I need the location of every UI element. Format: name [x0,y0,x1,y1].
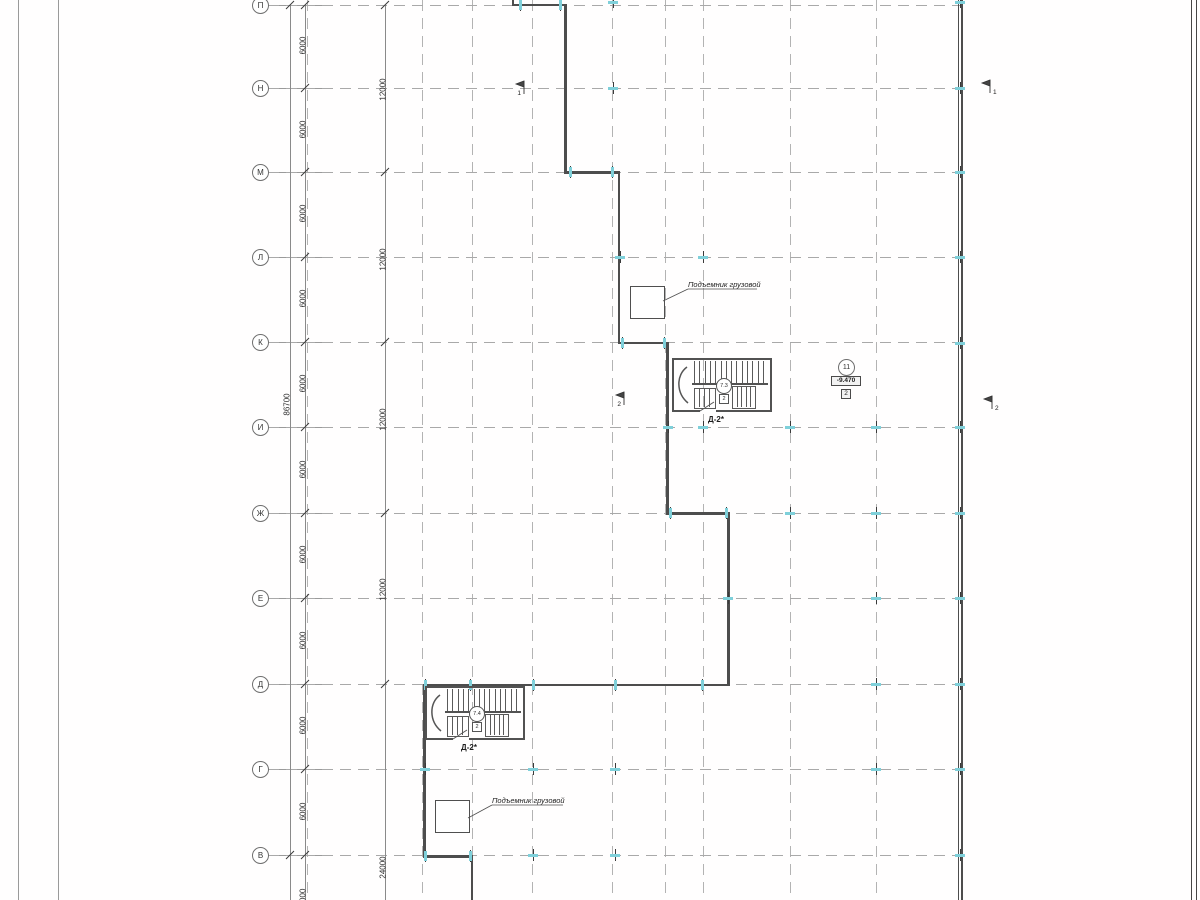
stair-tread [704,388,705,407]
stair-tread [731,361,732,383]
drawing-sheet: ПНМЛКИЖЕДГВ60006000600060006000600060006… [0,0,1200,900]
column-tick [569,167,572,177]
wall-segment [471,855,474,900]
row-axis-bubble: В [252,847,269,864]
column-tick [723,597,733,600]
column-tick [785,426,795,429]
column-tick [663,338,666,348]
column-tick [559,0,562,10]
cargo-lift-label: Подъемник грузовой [492,796,565,805]
section-flag-icon [616,392,624,398]
badge-box: 2 [841,389,851,399]
stair-tread [694,361,695,383]
section-flag-number: 2 [612,401,621,408]
stair-tread [505,689,506,711]
sheet-frame-line [58,0,59,900]
section-flag-icon [984,396,992,402]
dim-text-12000: 12000 [379,565,388,615]
column-tick [532,680,535,690]
stair-tread [511,689,512,711]
dim-text-6000: 6000 [299,279,308,319]
row-axis-bubble: И [252,419,269,436]
stair-tread [709,388,710,407]
dim-text-6000: 6000 [299,194,308,234]
stair-tread [763,361,764,383]
badge-node-circle: 11 [838,359,855,376]
stair-room-number: 7.4 [469,706,485,722]
stair-tread [490,714,491,735]
sheet-border-line [1196,0,1197,900]
dim-text-12000: 12000 [379,65,388,115]
cargo-lift-label: Подъемник грузовой [688,280,761,289]
dim-text-6000: 6000 [299,110,308,150]
stair-tread [715,361,716,383]
column-tick [621,338,624,348]
stair-tread [503,714,504,735]
column-gridline [703,0,704,900]
dim-text-6000: 6000 [299,706,308,746]
column-tick [725,508,728,518]
column-tick [955,683,965,686]
stair-tread-set [694,388,716,409]
sheet-frame-line [18,0,19,900]
column-tick [420,768,430,771]
dim-text-overall: 86700 [283,380,292,430]
dim-text-12000: 12000 [379,395,388,445]
stair-tread [468,689,469,711]
stair-tread [516,689,517,711]
row-axis-bubble: Ж [252,505,269,522]
section-flag-number: 2 [995,405,1004,412]
column-tick [663,426,673,429]
row-axis-bubble: К [252,334,269,351]
column-tick [698,256,708,259]
column-tick [955,768,965,771]
column-tick [615,256,625,259]
column-tick [614,680,617,690]
row-axis-line [268,5,960,6]
column-tick [871,597,881,600]
column-tick [608,1,618,4]
section-flag-number: 1 [512,90,521,97]
stair-tread [458,689,459,711]
diagonal-details-layer [0,0,1200,900]
section-flag-number: 1 [993,89,1002,96]
row-axis-line [268,257,960,258]
column-tick [611,167,614,177]
dim-line-overall [290,5,291,900]
stair-tread [752,361,753,383]
row-axis-bubble: Н [252,80,269,97]
dim-line-12000 [385,5,386,900]
column-tick [955,256,965,259]
dim-text-6000: 6000 [299,535,308,575]
stair-label: Д-2* [461,743,477,752]
stair-tread [741,386,742,407]
column-tick [955,1,965,4]
column-tick [701,680,704,690]
row-axis-line [268,598,960,599]
stair-door-gap [700,409,716,412]
stair-tread [452,689,453,711]
row-axis-bubble: Д [252,676,269,693]
column-tick [610,854,620,857]
column-tick [871,426,881,429]
row-axis-bubble: Е [252,590,269,607]
row-axis-line [268,342,960,343]
row-axis-line [268,427,960,428]
column-tick [955,87,965,90]
stair-tread [500,689,501,711]
row-axis-bubble: Г [252,761,269,778]
column-tick [785,512,795,515]
stair-tread [746,386,747,407]
stair-tread [758,361,759,383]
column-tick [955,854,965,857]
section-flag-icon [516,81,524,87]
stair-tread [705,361,706,383]
column-tick [610,768,620,771]
column-tick [955,342,965,345]
stair-tread [737,386,738,407]
stair-tread [457,716,458,735]
wall-segment [564,4,567,174]
column-gridline [612,0,613,900]
wall-segment [618,342,669,345]
column-tick [424,851,427,861]
stair-tag: 2 [719,394,729,404]
stair-tread [750,386,751,407]
column-tick [955,426,965,429]
stair-room-number: 7.3 [716,378,732,394]
column-tick [955,512,965,515]
dim-text-12000: 12000 [379,235,388,285]
row-axis-bubble: Л [252,249,269,266]
row-axis-line [268,513,960,514]
sheet-border-line [1191,0,1192,900]
dim-text-6000: 6000 [299,621,308,661]
column-tick [528,768,538,771]
column-tick [469,851,472,861]
wall-segment [666,512,730,515]
column-tick [608,87,618,90]
stair-tread [736,361,737,383]
column-tick [669,508,672,518]
stair-tread [494,714,495,735]
column-tick [698,426,708,429]
column-tick [871,683,881,686]
section-flag-icon [982,80,990,86]
wall-segment [423,855,473,858]
stair-tread [463,689,464,711]
stair-tread [447,689,448,711]
stair-tread [484,689,485,711]
dim-text-6000: 6000 [299,878,308,900]
column-tick [528,854,538,857]
stair-tread [710,361,711,383]
stair-tread [495,689,496,711]
cargo-lift-leader [663,289,688,301]
dim-text-24000: 24000 [379,843,388,893]
dim-text-6000: 6000 [299,450,308,490]
stair-tread [489,689,490,711]
column-tick [871,512,881,515]
row-axis-bubble: П [252,0,269,14]
column-tick [519,0,522,10]
stair-tread [699,361,700,383]
stair-tread [742,361,743,383]
cargo-lift-box [435,800,470,833]
stair-tag: 2 [472,722,482,732]
stair-tread-set [447,716,469,737]
wall-segment [961,0,962,900]
stair-tread [747,361,748,383]
badge-elevation: -9.470 [831,376,861,386]
column-gridline [790,0,791,900]
stair-label: Д-2* [708,415,724,424]
column-tick [955,171,965,174]
row-axis-bubble: М [252,164,269,181]
column-tick [955,597,965,600]
stair-tread [452,716,453,735]
stair-tread [699,388,700,407]
dim-text-6000: 6000 [299,26,308,66]
dim-text-6000: 6000 [299,792,308,832]
stair-tread [462,716,463,735]
column-tick [871,768,881,771]
stair-door-gap [453,737,469,740]
stair-tread [499,714,500,735]
dim-text-6000: 6000 [299,364,308,404]
cargo-lift-box [630,286,665,319]
column-gridline [472,0,473,900]
